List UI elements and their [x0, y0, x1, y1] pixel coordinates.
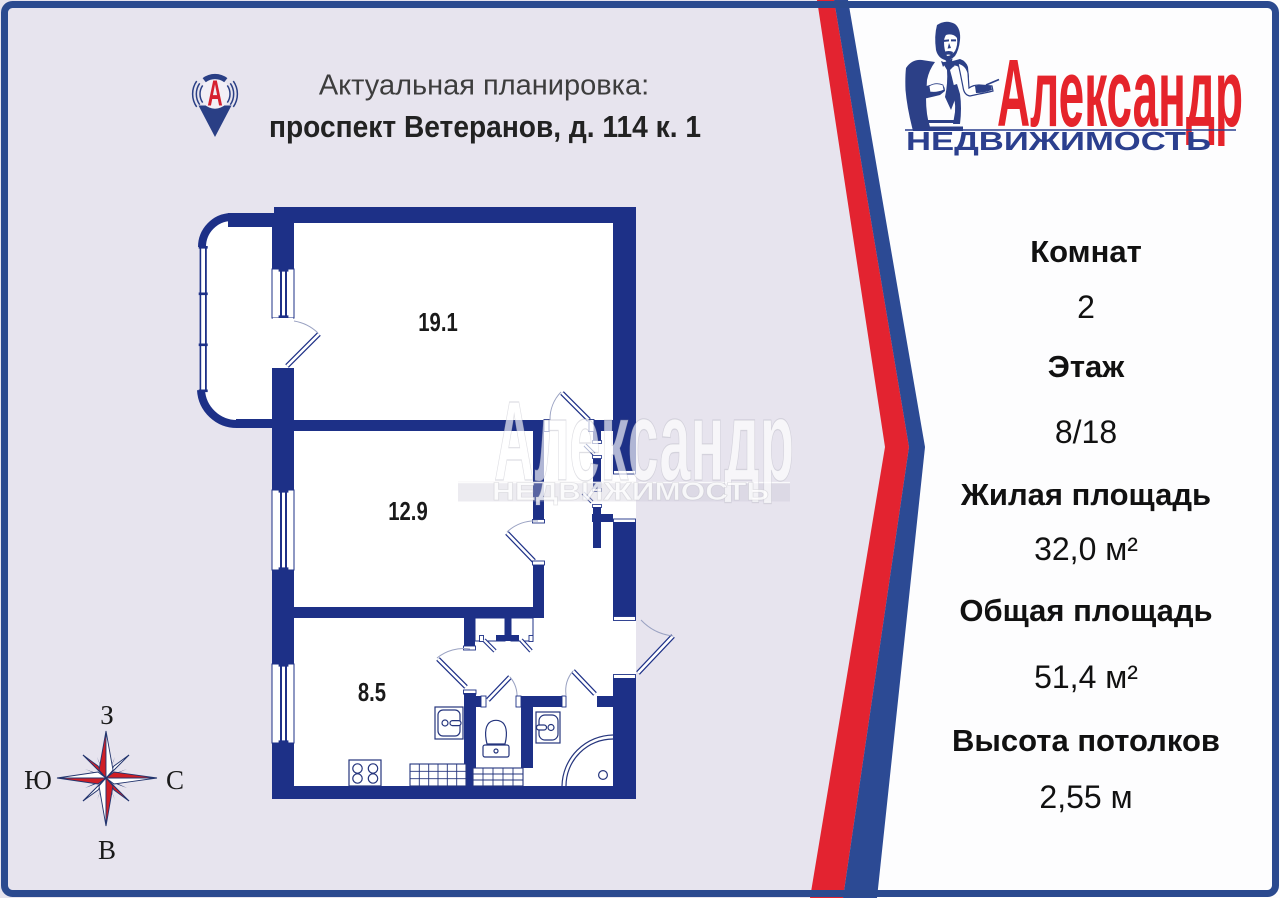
svg-text:проспект Ветеранов, д. 114 к.: проспект Ветеранов, д. 114 к. 1: [269, 110, 701, 144]
svg-text:Ю: Ю: [24, 765, 52, 795]
svg-text:Жилая площадь: Жилая площадь: [960, 477, 1211, 512]
svg-text:НЕДВИЖИМОСТЬ: НЕДВИЖИМОСТЬ: [906, 128, 1211, 156]
svg-text:А: А: [207, 74, 222, 114]
svg-text:НЕДВИЖИМОСТЬ: НЕДВИЖИМОСТЬ: [492, 478, 769, 506]
svg-text:2: 2: [1077, 289, 1095, 325]
svg-text:32,0 м²: 32,0 м²: [1034, 531, 1138, 567]
svg-text:Комнат: Комнат: [1030, 234, 1142, 269]
svg-text:З: З: [100, 700, 114, 730]
svg-text:Этаж: Этаж: [1048, 349, 1125, 384]
svg-text:19.1: 19.1: [418, 308, 457, 337]
svg-text:С: С: [166, 765, 184, 795]
svg-text:8/18: 8/18: [1055, 414, 1117, 450]
svg-text:В: В: [98, 835, 116, 865]
svg-text:8.5: 8.5: [358, 678, 386, 707]
svg-text:2,55 м: 2,55 м: [1039, 779, 1132, 815]
svg-text:Высота потолков: Высота потолков: [952, 723, 1220, 758]
svg-text:Актуальная планировка:: Актуальная планировка:: [319, 70, 649, 102]
svg-text:Общая площадь: Общая площадь: [959, 593, 1212, 628]
svg-text:51,4 м²: 51,4 м²: [1034, 659, 1138, 695]
svg-text:12.9: 12.9: [388, 497, 427, 526]
